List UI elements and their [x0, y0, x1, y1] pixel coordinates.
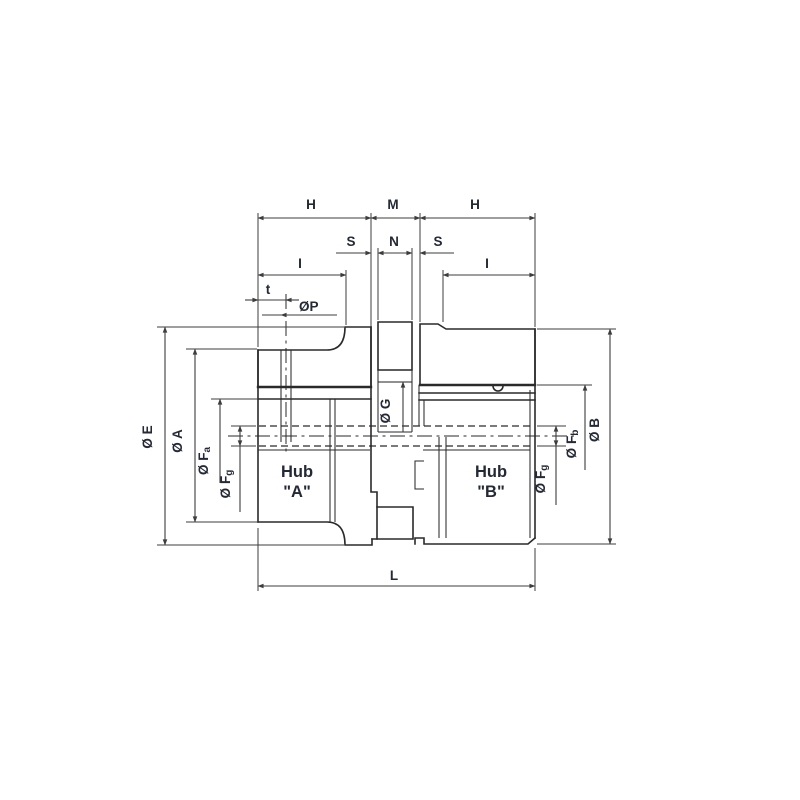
label-hub-b-line1: Hub: [475, 463, 507, 481]
label-i-left: I: [298, 256, 302, 271]
technical-drawing-page: H M H S N S I I t L ØP Ø E Ø A Ø Fa Ø Fg…: [0, 0, 800, 800]
label-m: M: [387, 197, 398, 212]
label-n: N: [389, 234, 399, 249]
hub-b-flange-section: [420, 324, 535, 385]
label-hub-a-line2: "A": [283, 483, 311, 501]
hub-a-flange-section: [258, 327, 371, 387]
label-dia-p: ØP: [299, 299, 319, 314]
spider-sleeve-section: [378, 322, 412, 370]
centerlines: [228, 294, 574, 452]
hub-b-nose-edges: [419, 385, 424, 426]
part-geometry: [258, 322, 535, 545]
label-h-left: H: [306, 197, 316, 212]
label-dia-fb: Ø Fb: [564, 430, 581, 459]
hub-a-lower-jaw-face: [371, 446, 377, 539]
hub-b-lube-hole: [493, 386, 503, 391]
label-dia-g: Ø G: [378, 399, 393, 424]
label-h-right: H: [470, 197, 480, 212]
label-dia-a: Ø A: [170, 429, 185, 453]
spider-lower-tooth: [372, 507, 413, 539]
label-dia-fa: Ø Fa: [196, 447, 213, 476]
label-hub-a-line1: Hub: [281, 463, 313, 481]
label-dia-b: Ø B: [587, 418, 602, 442]
hub-a-lower-profile: [258, 522, 372, 545]
label-s-right: S: [433, 234, 442, 249]
label-dia-e: Ø E: [140, 425, 155, 448]
coupling-cross-section-drawing: H M H S N S I I t L ØP Ø E Ø A Ø Fa Ø Fg…: [0, 0, 800, 800]
label-i-right: I: [485, 256, 489, 271]
spider-elastomer-knurl: [378, 370, 412, 382]
label-t: t: [266, 282, 271, 297]
hub-b-lower-profile: [415, 538, 535, 544]
label-hub-b-line2: "B": [477, 483, 505, 501]
hub-b-jaw-bracket: [415, 461, 424, 489]
label-s-left: S: [346, 234, 355, 249]
label-l: L: [390, 568, 398, 583]
